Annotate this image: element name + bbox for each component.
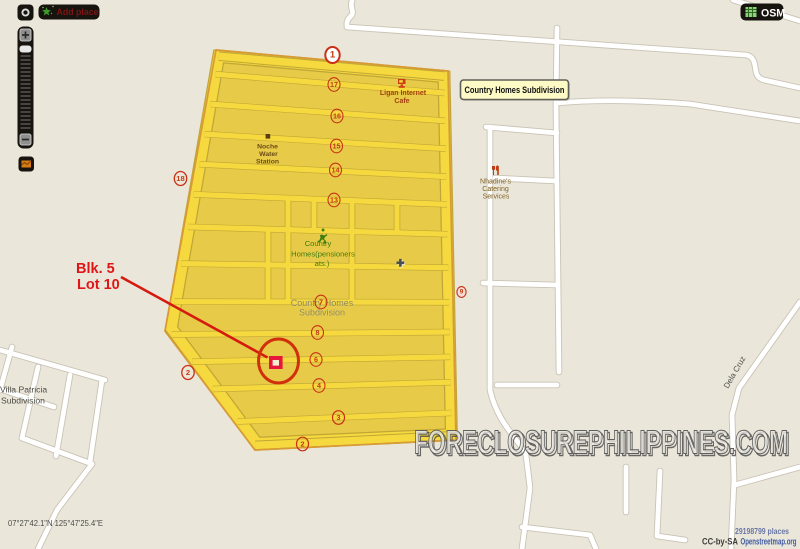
svg-text:CC-by-SA: CC-by-SA xyxy=(702,537,739,547)
svg-text:ats.): ats.) xyxy=(315,259,330,268)
svg-text:13: 13 xyxy=(330,196,338,205)
svg-text:Lot 10: Lot 10 xyxy=(77,277,120,293)
svg-text:2: 2 xyxy=(186,368,190,377)
svg-text:Nhadine's: Nhadine's xyxy=(480,179,511,186)
svg-text:FORECLOSUREPHILIPPINES.COM: FORECLOSUREPHILIPPINES.COM xyxy=(414,424,788,461)
svg-text:Ligan Internet: Ligan Internet xyxy=(380,90,427,97)
svg-text:Country Homes Subdivision: Country Homes Subdivision xyxy=(465,85,565,95)
svg-text:Catering: Catering xyxy=(482,186,509,193)
svg-text:7: 7 xyxy=(319,298,323,307)
svg-text:Services: Services xyxy=(483,193,510,200)
svg-text:29198799 places: 29198799 places xyxy=(735,526,789,536)
svg-text:17: 17 xyxy=(330,80,338,89)
svg-text:Blk. 5: Blk. 5 xyxy=(76,261,115,277)
svg-text:Openstreetmap.org: Openstreetmap.org xyxy=(741,537,797,547)
svg-text:Add place: Add place xyxy=(57,7,99,17)
svg-text:1: 1 xyxy=(330,50,336,61)
svg-text:07°27'42.1"N 125°47'25.4"E: 07°27'42.1"N 125°47'25.4"E xyxy=(8,518,103,528)
svg-text:Water: Water xyxy=(259,151,278,158)
svg-text:14: 14 xyxy=(332,166,340,175)
svg-text:15: 15 xyxy=(333,142,341,151)
svg-text:18: 18 xyxy=(176,174,184,183)
svg-text:Subdivision: Subdivision xyxy=(1,396,45,406)
svg-text:3: 3 xyxy=(337,413,341,422)
svg-text:Cafe: Cafe xyxy=(394,98,409,105)
svg-text:6: 6 xyxy=(314,355,318,364)
svg-text:9: 9 xyxy=(460,289,464,296)
svg-text:4: 4 xyxy=(317,381,321,390)
svg-text:2: 2 xyxy=(301,440,305,449)
svg-text:Villa Patricia: Villa Patricia xyxy=(0,385,47,395)
svg-text:Noche: Noche xyxy=(257,144,278,151)
svg-text:Station: Station xyxy=(256,158,279,165)
svg-text:Country: Country xyxy=(305,239,332,248)
svg-text:Homes(pensioners: Homes(pensioners xyxy=(291,250,355,259)
svg-text:OSM: OSM xyxy=(761,8,785,20)
svg-text:8: 8 xyxy=(316,328,320,337)
svg-text:16: 16 xyxy=(333,112,341,121)
